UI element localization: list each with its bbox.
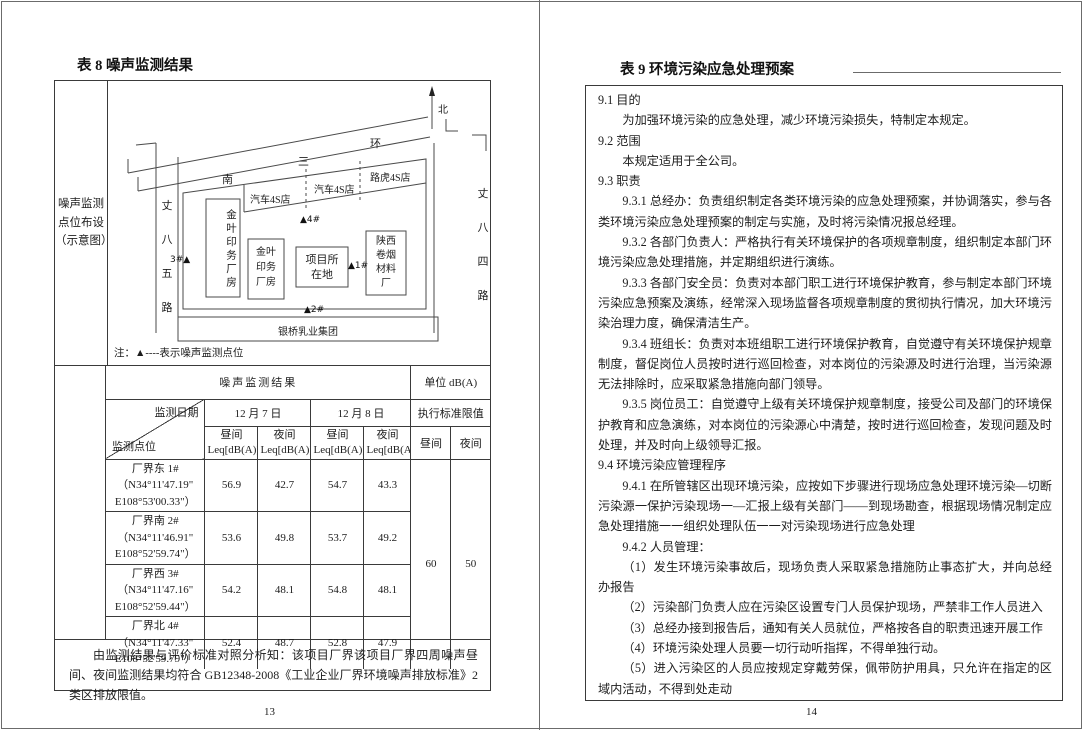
monitoring-results-row: 噪声监测结果 单位 dB(A) 监测日期 监测点位 12 月 7 日 12 月 … [55,366,490,639]
diag-point-label: 监测点位 [112,438,156,454]
paragraph: 本规定适用于全公司。 [598,151,1052,171]
value: 54.8 [311,564,364,617]
noise-results-table: 噪声监测结果 单位 dB(A) 监测日期 监测点位 12 月 7 日 12 月 … [106,366,490,669]
north-label: 北 [438,101,448,116]
paragraph: 9.3.1 总经办：负责组织制定各类环境污染的应急处理预案，并协调落实，参与各类… [598,191,1052,232]
jinye-small-label-text: 金叶印务厂房 [255,245,277,290]
point-name: 厂界南 2# （N34°11'46.91" E108°52'59.74"） [106,512,205,565]
project-site-label-text: 项目所在地 [304,253,340,283]
unit-label: 单位 dB(A) [411,366,490,399]
shaanxi-tobacco-label-text: 陕西卷烟材料厂 [375,235,397,291]
jinye-small-label: 金叶印务厂房 [248,245,284,290]
page-13: 表 8 噪声监测结果 噪声监测 点位布设 （示意图） [0,0,539,730]
landrover-label: 路虎4S店 [370,169,411,184]
paragraph: （5）进入污染区的人员应按规定穿戴劳保，佩带防护用具，只允许在指定的区域内活动，… [598,658,1052,699]
road-corner-mark [472,135,486,151]
monitor-point-2: ▲2# [304,305,324,315]
diagonal-header-cell: 监测日期 监测点位 [106,399,205,459]
right-road-label: 丈八四路 [476,177,490,313]
section-heading: 9.1 目的 [598,90,1052,110]
monitor-point-4: ▲4# [300,215,320,225]
point-name: 厂界西 3# （N34°11'47.16" E108°52'59.44"） [106,564,205,617]
jinye-tall-label: 金叶印务厂房 [208,205,238,293]
project-site-label: 项目所在地 [296,253,348,283]
monitor-point-3: 3#▲ [170,255,190,265]
paragraph: （6）污染事故处理完毕，要做到工完料静场地清，安全监督部和事故单位应记录存档。 [598,699,1052,701]
limit-header: 执行标准限值 [411,399,490,426]
limit-day-value: 60 [411,459,451,669]
paragraph: （4）环境污染处理人员要一切行动听指挥，不得单独行动。 [598,638,1052,658]
date-header-dec8: 12 月 8 日 [311,399,411,426]
page-number-13: 13 [0,706,539,718]
section-heading: 9.4 环境污染应管理程序 [598,455,1052,475]
conclusion-row: 由监测结果与评价标准对照分析知：该项目厂界该项目厂界四周噪声昼间、夜间监测结果均… [55,639,490,691]
conclusion-text: 由监测结果与评价标准对照分析知：该项目厂界该项目厂界四周噪声昼间、夜间监测结果均… [69,645,478,705]
value: 49.8 [258,512,311,565]
map-row: 噪声监测 点位布设 （示意图） [55,81,490,366]
dairy-label-text: 银桥乳业集团 [178,323,438,338]
map-row-header: 噪声监测 点位布设 （示意图） [55,81,108,365]
paragraph: 9.4.2 人员管理： [598,537,1052,557]
value: 54.7 [311,459,364,512]
car4s-1-label: 汽车4S店 [250,191,291,206]
value: 56.9 [205,459,258,512]
ring-road-char-2: 三 [298,153,309,169]
value: 48.1 [364,564,411,617]
emergency-plan-box: 9.1 目的 为加强环境污染的应急处理，减少环境污染损失，特制定本规定。 9.2… [585,85,1063,701]
site-map: 北 南 三 环 丈八五路 丈八四路 汽车4S店 汽车4S店 路虎4S店 金叶印务… [108,81,490,365]
noise-report-table: 噪声监测 点位布设 （示意图） [54,80,491,691]
spacer-column [55,366,106,639]
dec8-night-subheader: 夜间 Leq[dB(A)] [364,426,411,459]
section-heading: 9.2 范围 [598,131,1052,151]
road-corner-mark [446,119,458,131]
page-14: 表 9 环境污染应急处理预案 9.1 目的 为加强环境污染的应急处理，减少环境污… [540,0,1083,730]
paragraph: （3）总经办接到报告后，通知有关人员就位，严格按各自的职责迅速开展工作 [598,618,1052,638]
diag-date-label: 监测日期 [154,404,198,420]
paragraph: 9.3.3 各部门安全员：负责对本部门职工进行环境保护教育，参与制定本部门环境污… [598,273,1052,334]
table8-title: 表 8 噪声监测结果 [77,54,193,75]
road-stub [136,143,156,145]
table9-title: 表 9 环境污染应急处理预案 [620,58,794,79]
paragraph: （2）污染部门负责人应在污染区设置专门人员保护现场，严禁非工作人员进入 [598,597,1052,617]
value: 54.2 [205,564,258,617]
shaanxi-tobacco-label: 陕西卷烟材料厂 [366,235,406,291]
limit-night-subheader: 夜间 [451,426,490,459]
section-heading: 9.3 职责 [598,171,1052,191]
north-arrow-head [429,86,435,96]
value: 53.6 [205,512,258,565]
dec8-day-subheader: 昼间 Leq[dB(A)] [311,426,364,459]
page-number-14: 14 [540,706,1083,718]
paragraph: （1）发生环境污染事故后，现场负责人采取紧急措施防止事态扩大，并向总经办报告 [598,557,1052,598]
paragraph: 9.3.2 各部门负责人：严格执行有关环境保护的各项规章制度，组织制定本部门环境… [598,232,1052,273]
point-name: 厂界东 1# （N34°11'47.19" E108°53'00.33"） [106,459,205,512]
ring-road-char-3: 环 [370,135,381,151]
title-rule [853,72,1061,73]
value: 42.7 [258,459,311,512]
document-scan: 表 8 噪声监测结果 噪声监测 点位布设 （示意图） [0,0,1083,730]
value: 53.7 [311,512,364,565]
table-row: 厂界东 1# （N34°11'47.19" E108°53'00.33"） 56… [106,459,490,512]
page-divider [539,0,540,730]
paragraph: 9.3.4 班组长：负责对本班组职工进行环境保护教育，自觉遵守有关环境保护规章制… [598,334,1052,395]
dec7-day-subheader: 昼间 Leq[dB(A)] [205,426,258,459]
dairy-label: 银桥乳业集团 [178,323,438,338]
dec7-night-subheader: 夜间 Leq[dB(A)] [258,426,311,459]
paragraph: 为加强环境污染的应急处理，减少环境污染损失，特制定本规定。 [598,110,1052,130]
value: 43.3 [364,459,411,512]
date-header-dec7: 12 月 7 日 [205,399,311,426]
paragraph: 9.4.1 在所管辖区出现环境污染，应按如下步骤进行现场应急处理环境污染—切断污… [598,476,1052,537]
limit-night-value: 50 [451,459,490,669]
car4s-2-label: 汽车4S店 [314,181,355,196]
value: 48.1 [258,564,311,617]
monitor-point-1: ▲1# [348,261,368,271]
value: 49.2 [364,512,411,565]
limit-day-subheader: 昼间 [411,426,451,459]
map-note: 注：▲----表示噪声监测点位 [114,345,243,360]
paragraph: 9.3.5 岗位员工：自觉遵守上级有关环境保护规章制度，接受公司及部门的环境保护… [598,394,1052,455]
ring-road-char-1: 南 [222,171,233,187]
results-title: 噪声监测结果 [106,366,411,399]
